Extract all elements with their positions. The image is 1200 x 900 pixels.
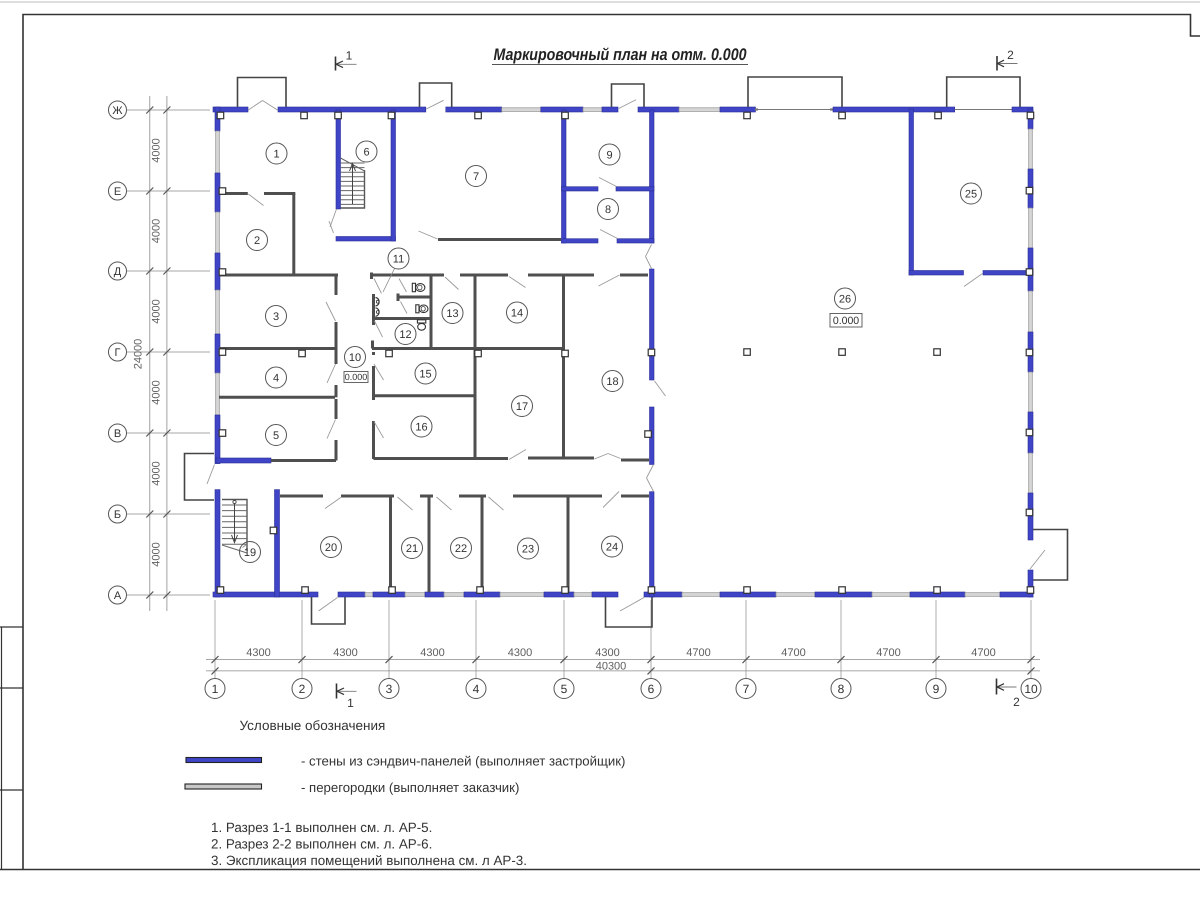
svg-text:4000: 4000 [151, 380, 163, 404]
svg-text:9: 9 [933, 682, 940, 696]
svg-text:6: 6 [363, 147, 369, 159]
svg-text:10: 10 [349, 352, 361, 364]
svg-text:Г: Г [115, 347, 121, 359]
svg-text:12: 12 [399, 329, 411, 341]
svg-text:4700: 4700 [686, 647, 710, 659]
svg-text:2: 2 [254, 235, 260, 247]
svg-text:15: 15 [419, 369, 431, 381]
svg-text:4: 4 [273, 373, 279, 385]
svg-text:1. Разрез 1-1 выполнен см. л.: 1. Разрез 1-1 выполнен см. л. АР-5. [211, 820, 432, 835]
svg-text:4000: 4000 [151, 542, 163, 566]
svg-text:4300: 4300 [246, 647, 270, 659]
svg-text:8: 8 [838, 682, 845, 696]
svg-text:19: 19 [244, 547, 256, 559]
svg-text:4300: 4300 [420, 647, 444, 659]
svg-text:4: 4 [473, 682, 480, 696]
svg-text:4000: 4000 [151, 461, 163, 485]
svg-text:20: 20 [325, 542, 337, 554]
svg-text:1: 1 [273, 149, 279, 161]
svg-text:4700: 4700 [876, 647, 900, 659]
svg-text:1: 1 [346, 49, 353, 63]
svg-text:4300: 4300 [508, 647, 532, 659]
svg-text:Д: Д [114, 266, 122, 278]
svg-text:2: 2 [299, 682, 306, 696]
svg-text:7: 7 [743, 682, 750, 696]
svg-text:6: 6 [648, 682, 655, 696]
svg-text:Ж: Ж [112, 105, 122, 117]
svg-text:13: 13 [446, 308, 458, 320]
svg-text:4300: 4300 [333, 647, 357, 659]
svg-text:26: 26 [839, 294, 851, 306]
svg-text:14: 14 [511, 308, 523, 320]
svg-text:40300: 40300 [596, 661, 627, 673]
svg-text:24: 24 [606, 542, 618, 554]
svg-text:4700: 4700 [781, 647, 805, 659]
svg-text:10: 10 [1024, 682, 1038, 696]
svg-text:22: 22 [455, 543, 467, 555]
svg-text:Условные обозначения: Условные обозначения [240, 718, 386, 733]
svg-text:1: 1 [347, 696, 354, 710]
svg-text:4000: 4000 [151, 219, 163, 243]
svg-text:2: 2 [1007, 48, 1014, 62]
svg-text:Б: Б [114, 509, 121, 521]
svg-text:0.000: 0.000 [833, 315, 859, 327]
svg-text:8: 8 [605, 204, 611, 216]
svg-text:21: 21 [406, 543, 418, 555]
svg-text:9: 9 [606, 150, 612, 162]
svg-text:0.000: 0.000 [345, 372, 368, 382]
svg-text:Е: Е [114, 186, 121, 198]
svg-text:3: 3 [386, 682, 393, 696]
svg-text:Маркировочный план на отм. 0.0: Маркировочный план на отм. 0.000 [494, 45, 748, 64]
svg-text:17: 17 [516, 401, 528, 413]
svg-text:2: 2 [1013, 695, 1020, 709]
svg-text:4700: 4700 [971, 647, 995, 659]
svg-text:4300: 4300 [595, 647, 619, 659]
svg-text:24000: 24000 [133, 339, 145, 370]
svg-text:23: 23 [522, 544, 534, 556]
svg-text:3. Экспликация помещений выпол: 3. Экспликация помещений выполнена см. л… [211, 853, 527, 868]
svg-text:В: В [114, 428, 121, 440]
svg-text:2. Разрез 2-2 выполнен см. л.: 2. Разрез 2-2 выполнен см. л. АР-6. [211, 837, 432, 852]
svg-text:5: 5 [561, 682, 568, 696]
svg-text:- стены из сэндвич-панелей (вы: - стены из сэндвич-панелей (выполняет за… [301, 754, 625, 769]
svg-text:4000: 4000 [151, 299, 163, 323]
svg-text:1: 1 [212, 682, 219, 696]
svg-text:11: 11 [393, 254, 404, 266]
svg-text:4000: 4000 [151, 138, 163, 162]
svg-text:25: 25 [965, 189, 977, 201]
svg-text:16: 16 [415, 422, 427, 434]
svg-text:7: 7 [473, 171, 479, 183]
svg-text:5: 5 [273, 430, 279, 442]
svg-text:18: 18 [606, 376, 618, 388]
svg-text:- перегородки (выполняет заказ: - перегородки (выполняет заказчик) [301, 780, 519, 795]
svg-text:А: А [114, 590, 122, 602]
svg-text:3: 3 [273, 311, 279, 323]
